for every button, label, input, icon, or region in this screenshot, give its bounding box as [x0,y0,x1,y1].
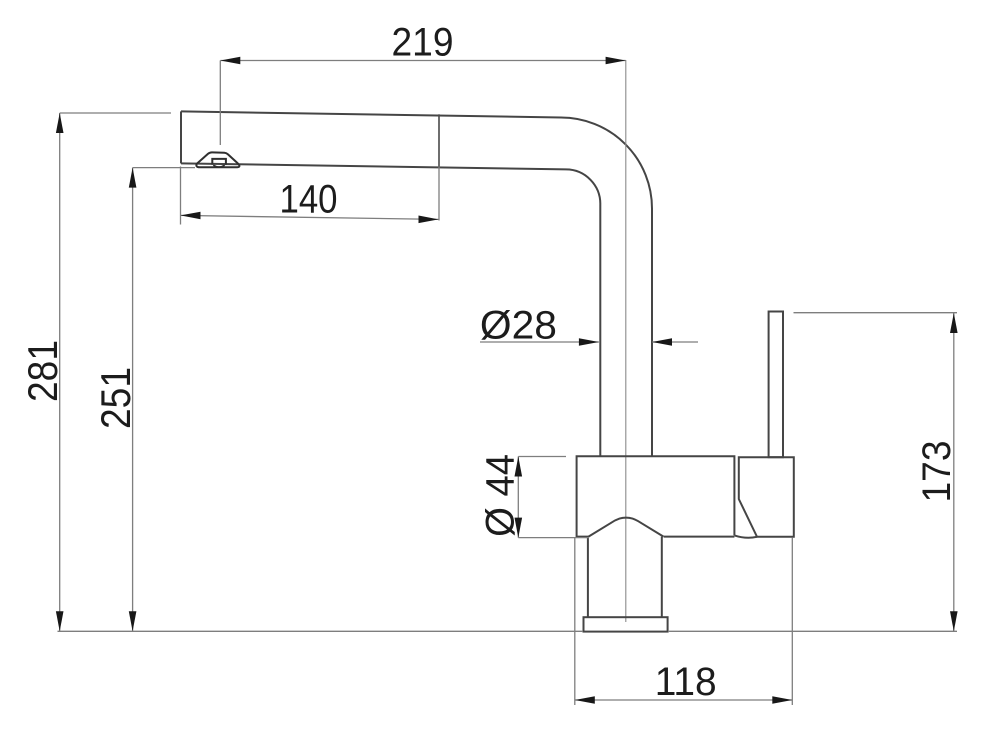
svg-text:219: 219 [392,21,454,65]
svg-text:251: 251 [92,367,139,429]
svg-text:173: 173 [915,441,959,503]
svg-text:Ø 44: Ø 44 [479,454,523,537]
svg-text:Ø28: Ø28 [480,304,557,348]
svg-text:118: 118 [655,660,717,704]
svg-text:140: 140 [280,177,338,221]
svg-text:281: 281 [19,340,66,402]
